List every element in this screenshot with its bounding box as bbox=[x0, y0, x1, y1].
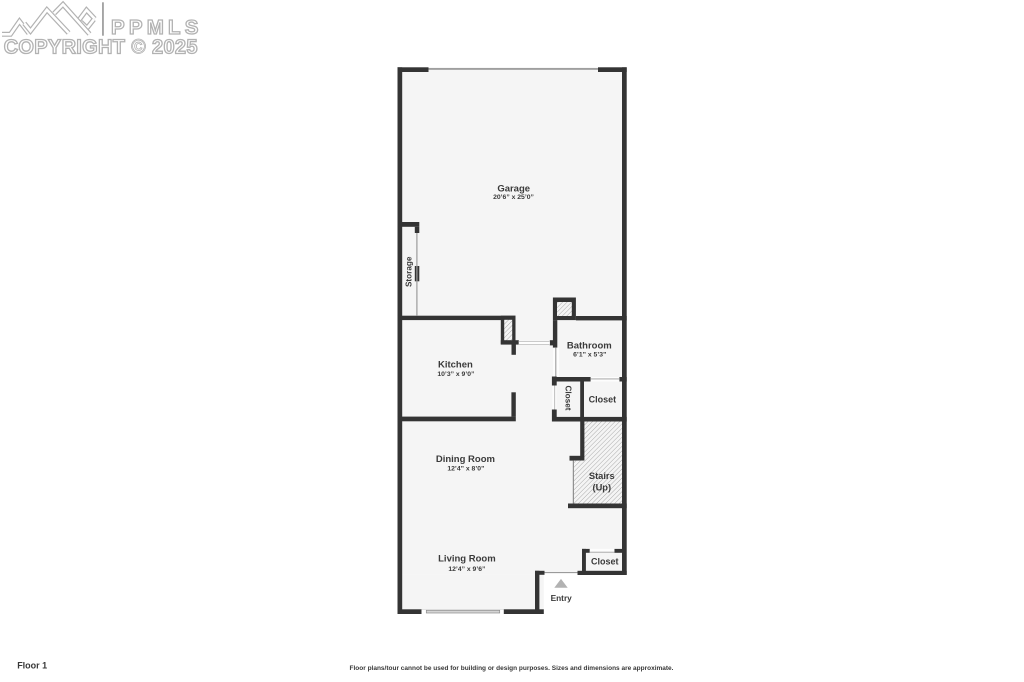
svg-text:COPYRIGHT © 2025: COPYRIGHT © 2025 bbox=[4, 37, 198, 59]
svg-text:Floor 1: Floor 1 bbox=[17, 661, 47, 671]
svg-text:Entry: Entry bbox=[551, 593, 573, 603]
svg-text:Closet: Closet bbox=[589, 395, 617, 405]
svg-text:Floor plans/tour cannot be use: Floor plans/tour cannot be used for buil… bbox=[350, 665, 674, 672]
svg-text:20’6” x 25’0”: 20’6” x 25’0” bbox=[493, 194, 534, 201]
svg-text:Dining Room: Dining Room bbox=[436, 454, 495, 465]
svg-text:Closet: Closet bbox=[591, 557, 619, 567]
svg-text:(Up): (Up) bbox=[593, 482, 612, 492]
svg-text:Closet: Closet bbox=[563, 385, 572, 410]
svg-text:Bathroom: Bathroom bbox=[567, 341, 612, 352]
svg-text:6’1” x 5’3”: 6’1” x 5’3” bbox=[573, 352, 606, 359]
svg-text:Storage: Storage bbox=[405, 256, 414, 287]
svg-text:Kitchen: Kitchen bbox=[438, 360, 473, 371]
svg-text:Stairs: Stairs bbox=[589, 471, 615, 481]
svg-text:12’4” x 8’0”: 12’4” x 8’0” bbox=[447, 466, 484, 473]
svg-text:Living Room: Living Room bbox=[438, 554, 496, 565]
svg-text:Garage: Garage bbox=[497, 184, 530, 195]
svg-text:10’3” x 9’0”: 10’3” x 9’0” bbox=[437, 371, 474, 378]
svg-text:12’4” x 9’6”: 12’4” x 9’6” bbox=[448, 566, 485, 573]
